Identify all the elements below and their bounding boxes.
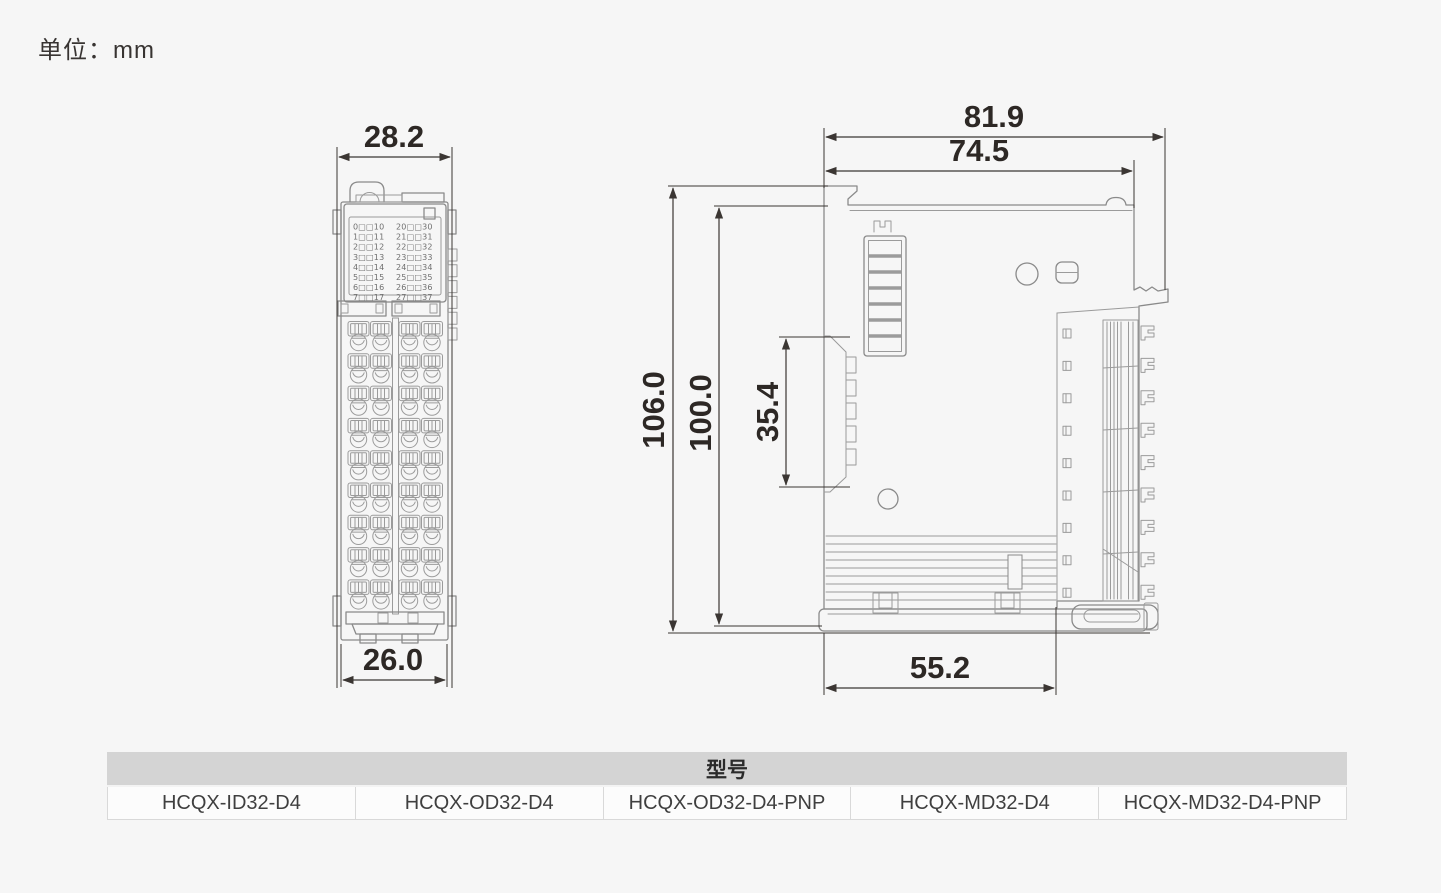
channel-label-right: 26□□36 (396, 283, 433, 292)
terminal-contact (422, 451, 443, 480)
channel-label-right: 24□□34 (396, 263, 433, 272)
channel-label-left: 5□□15 (353, 273, 384, 282)
terminal-contact (399, 418, 420, 447)
channel-label-right: 27□□37 (396, 293, 433, 302)
bus-hook (1141, 585, 1154, 599)
terminal-contact (371, 515, 392, 544)
contact-square (1063, 426, 1071, 435)
side-bus-hooks (1141, 326, 1154, 599)
channel-label-right: 20□□30 (396, 223, 433, 232)
terminal-contact (422, 483, 443, 512)
dimension-annotations: 28.2 26.0 81.9 74.5 106.0 100.0 35.4 (337, 99, 1165, 695)
terminal-contact (348, 515, 369, 544)
channel-label-right: 25□□35 (396, 273, 433, 282)
channel-label-right: 23□□33 (396, 253, 433, 262)
contact-square (1063, 329, 1071, 338)
technical-drawing: 0□□101□□112□□123□□134□□145□□156□□167□□17… (0, 0, 1441, 730)
terminal-contact (371, 418, 392, 447)
terminal-contact (399, 515, 420, 544)
channel-label-left: 2□□12 (353, 243, 384, 252)
terminal-contact (371, 386, 392, 415)
terminal-contact (371, 483, 392, 512)
bus-hook (1141, 326, 1154, 340)
terminal-contact (399, 354, 420, 383)
model-table-row: HCQX-ID32-D4HCQX-OD32-D4HCQX-OD32-D4-PNP… (108, 786, 1347, 820)
model-cell: HCQX-OD32-D4-PNP (603, 786, 851, 820)
contact-square (1063, 394, 1071, 403)
dim-side-height-total: 106.0 (636, 371, 671, 449)
dim-side-depth-bottom: 55.2 (910, 650, 970, 685)
channel-label-right: 22□□32 (396, 243, 433, 252)
bus-hook (1141, 358, 1154, 372)
terminal-contact (422, 354, 443, 383)
channel-label-left: 6□□16 (353, 283, 384, 292)
din-tooth (846, 426, 856, 442)
dim-side-din-height: 35.4 (750, 381, 785, 442)
front-view-drawing: 0□□101□□112□□123□□134□□145□□156□□167□□17… (333, 182, 457, 643)
dim-side-width-body: 74.5 (949, 133, 1009, 168)
terminal-contact (348, 418, 369, 447)
rib-slot (1008, 555, 1022, 589)
terminal-grid (348, 322, 443, 610)
bus-hook (1141, 488, 1154, 502)
contact-square (1063, 361, 1071, 370)
bus-hook (1141, 520, 1154, 534)
model-cell: HCQX-OD32-D4 (355, 786, 603, 820)
terminal-contact (399, 322, 420, 351)
terminal-contact (399, 483, 420, 512)
terminal-contact (399, 580, 420, 609)
bus-hook (1141, 391, 1154, 405)
terminal-contact (422, 515, 443, 544)
terminal-contact (371, 580, 392, 609)
model-cell: HCQX-MD32-D4-PNP (1099, 786, 1347, 820)
terminal-contact (422, 418, 443, 447)
channel-label-left: 0□□10 (353, 223, 384, 232)
bus-hook (1141, 456, 1154, 470)
terminal-contact (422, 580, 443, 609)
terminal-contact (399, 548, 420, 577)
contact-square (1063, 459, 1071, 468)
bus-hook (1141, 423, 1154, 437)
terminal-contact (371, 548, 392, 577)
ladder-vent-rungs (869, 256, 902, 336)
channel-label-grid: 0□□101□□112□□123□□134□□145□□156□□167□□17… (353, 223, 433, 303)
din-tooth (846, 380, 856, 396)
contact-square (1063, 588, 1071, 597)
channel-label-left: 4□□14 (353, 263, 384, 272)
din-tooth (846, 449, 856, 465)
model-table-header: 型号 (108, 753, 1347, 787)
dim-front-width-top: 28.2 (364, 119, 424, 154)
dim-front-width-bottom: 26.0 (363, 642, 423, 677)
channel-label-left: 7□□17 (353, 293, 384, 302)
channel-label-right: 21□□31 (396, 233, 433, 242)
dim-side-width-total: 81.9 (964, 99, 1024, 134)
contact-square (1063, 491, 1071, 500)
terminal-contact (348, 354, 369, 383)
dim-side-height-body: 100.0 (683, 374, 718, 452)
side-contact-squares (1063, 329, 1071, 597)
channel-label-left: 3□□13 (353, 253, 384, 262)
contact-square (1063, 523, 1071, 532)
vent-slats (1107, 322, 1133, 599)
channel-label-left: 1□□11 (353, 233, 384, 242)
terminal-contact (348, 580, 369, 609)
din-tooth (846, 357, 856, 373)
terminal-contact (422, 386, 443, 415)
terminal-contact (371, 354, 392, 383)
din-clip-teeth (846, 357, 856, 465)
terminal-contact (348, 451, 369, 480)
model-cell: HCQX-ID32-D4 (108, 786, 356, 820)
terminal-contact (371, 451, 392, 480)
terminal-contact (348, 322, 369, 351)
model-table: 型号 HCQX-ID32-D4HCQX-OD32-D4HCQX-OD32-D4-… (107, 752, 1347, 820)
terminal-contact (399, 451, 420, 480)
terminal-contact (348, 548, 369, 577)
terminal-contact (422, 322, 443, 351)
terminal-contact (399, 386, 420, 415)
bus-hook (1141, 553, 1154, 567)
terminal-contact (422, 548, 443, 577)
terminal-contact (348, 386, 369, 415)
terminal-contact (371, 322, 392, 351)
din-tooth (846, 403, 856, 419)
side-view-drawing (819, 186, 1168, 631)
contact-square (1063, 556, 1071, 565)
model-cell: HCQX-MD32-D4 (851, 786, 1099, 820)
terminal-contact (348, 483, 369, 512)
